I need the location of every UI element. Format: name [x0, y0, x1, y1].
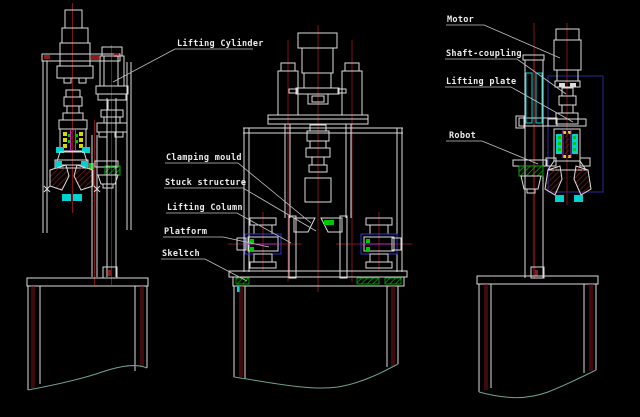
label-platform: Platform	[164, 227, 207, 237]
label-shaft-coupling: Shaft-coupling	[446, 48, 522, 59]
label-lifting-plate: Lifting plate	[446, 76, 516, 87]
label-stuck-structure: Stuck structure	[165, 178, 246, 188]
cad-drawing: Lifting Cylinder Motor Shaft-coupling Li…	[0, 0, 640, 417]
drawing-background	[0, 0, 640, 417]
label-clamping-mould: Clamping mould	[166, 152, 242, 163]
label-robot: Robot	[449, 131, 476, 141]
cad-canvas: Lifting Cylinder Motor Shaft-coupling Li…	[0, 0, 640, 417]
label-skeltch: Skeltch	[162, 249, 200, 259]
label-motor: Motor	[447, 15, 474, 25]
label-lifting-column: Lifting Column	[167, 202, 243, 213]
label-lifting-cylinder: Lifting Cylinder	[177, 38, 264, 49]
